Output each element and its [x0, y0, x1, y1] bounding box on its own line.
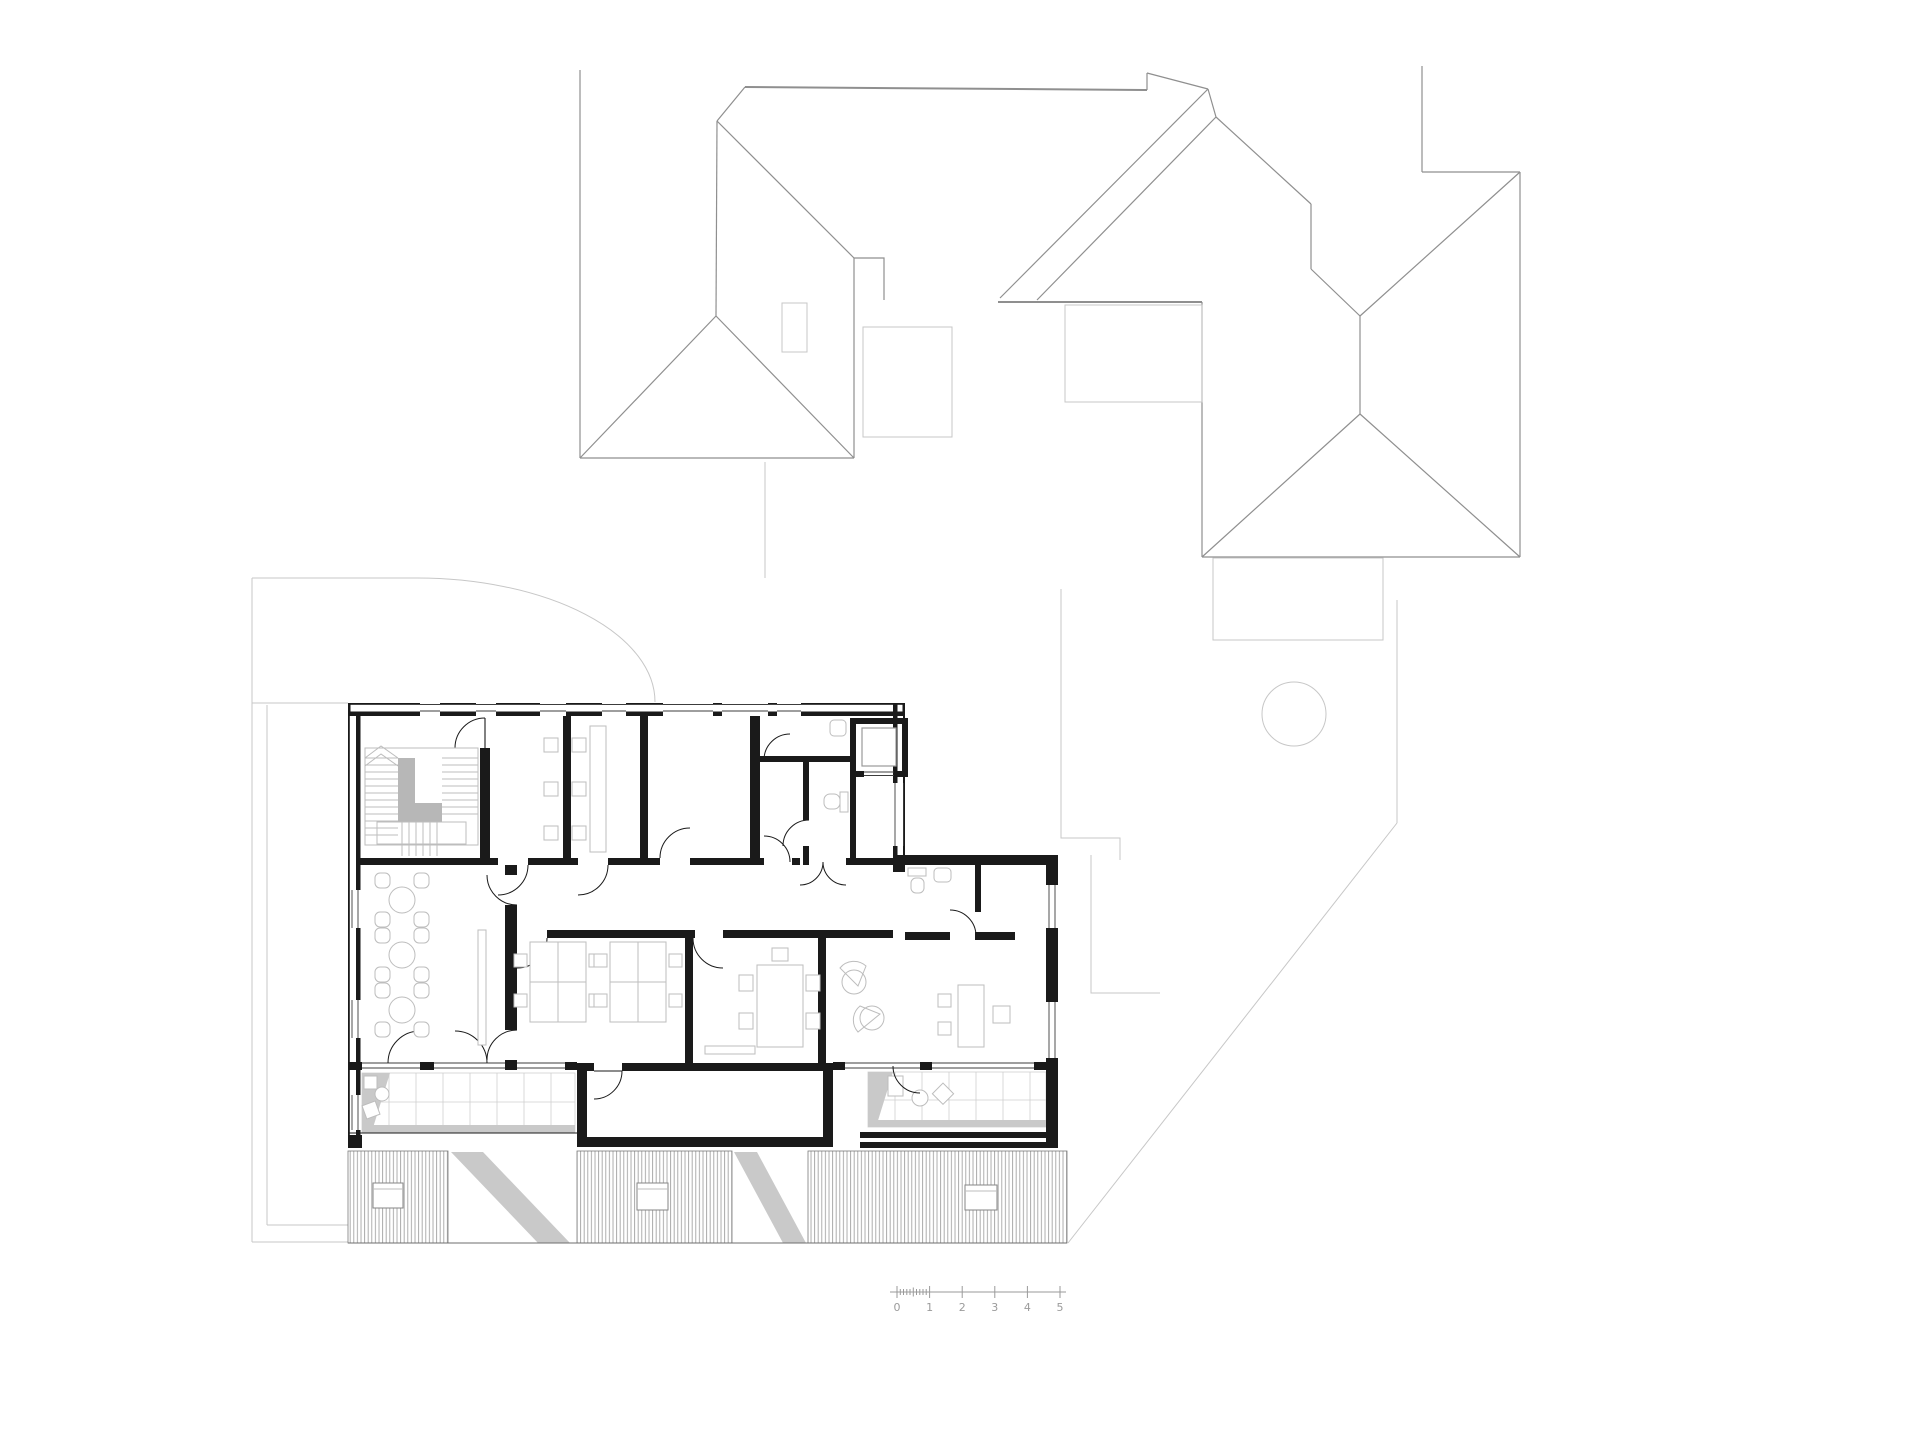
link-roof [998, 73, 1520, 316]
light-well-shadow [451, 1152, 570, 1243]
floor-plan [348, 703, 1058, 1148]
plan-drawing: 0 1 2 3 4 5 [0, 0, 1920, 1456]
floor-plan-sheet: 0 1 2 3 4 5 [0, 0, 1920, 1456]
scale-label-2: 2 [959, 1301, 966, 1314]
scale-label-5: 5 [1057, 1301, 1064, 1314]
scale-bar: 0 1 2 3 4 5 [890, 1286, 1066, 1314]
lower-roof [348, 1151, 1067, 1243]
bay-room [577, 1063, 833, 1147]
scale-label-0: 0 [894, 1301, 901, 1314]
scale-label-3: 3 [991, 1301, 998, 1314]
tree-circle [1262, 682, 1326, 746]
light-well-shadow [734, 1152, 806, 1243]
scale-label-1: 1 [926, 1301, 933, 1314]
partition [478, 930, 486, 1045]
terrace-right [868, 1072, 1046, 1127]
scale-label-4: 4 [1024, 1301, 1031, 1314]
room-desks [544, 726, 606, 852]
neighbor-roof-right [1202, 66, 1520, 557]
